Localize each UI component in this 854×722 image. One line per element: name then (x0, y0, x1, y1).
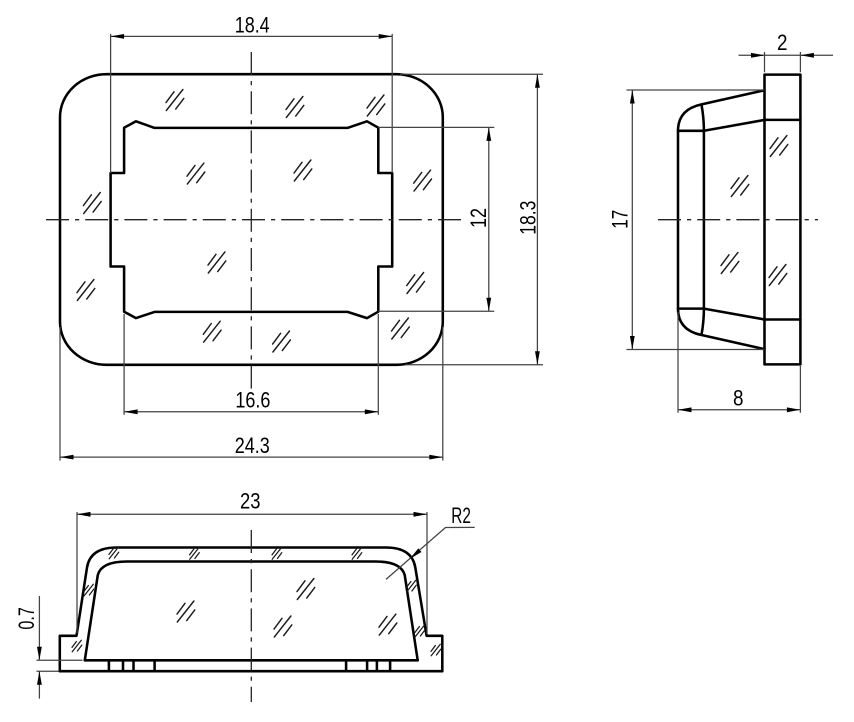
svg-text:18.4: 18.4 (235, 13, 270, 38)
svg-text:18.3: 18.3 (515, 201, 540, 235)
svg-text:16.6: 16.6 (235, 387, 270, 412)
svg-text:8: 8 (733, 385, 744, 410)
svg-text:2: 2 (777, 30, 788, 55)
svg-text:24.3: 24.3 (235, 433, 270, 458)
svg-text:17: 17 (608, 210, 633, 229)
svg-text:23: 23 (240, 488, 261, 513)
svg-text:12: 12 (466, 208, 491, 228)
svg-text:0.7: 0.7 (14, 607, 39, 630)
svg-text:R2: R2 (451, 503, 471, 528)
